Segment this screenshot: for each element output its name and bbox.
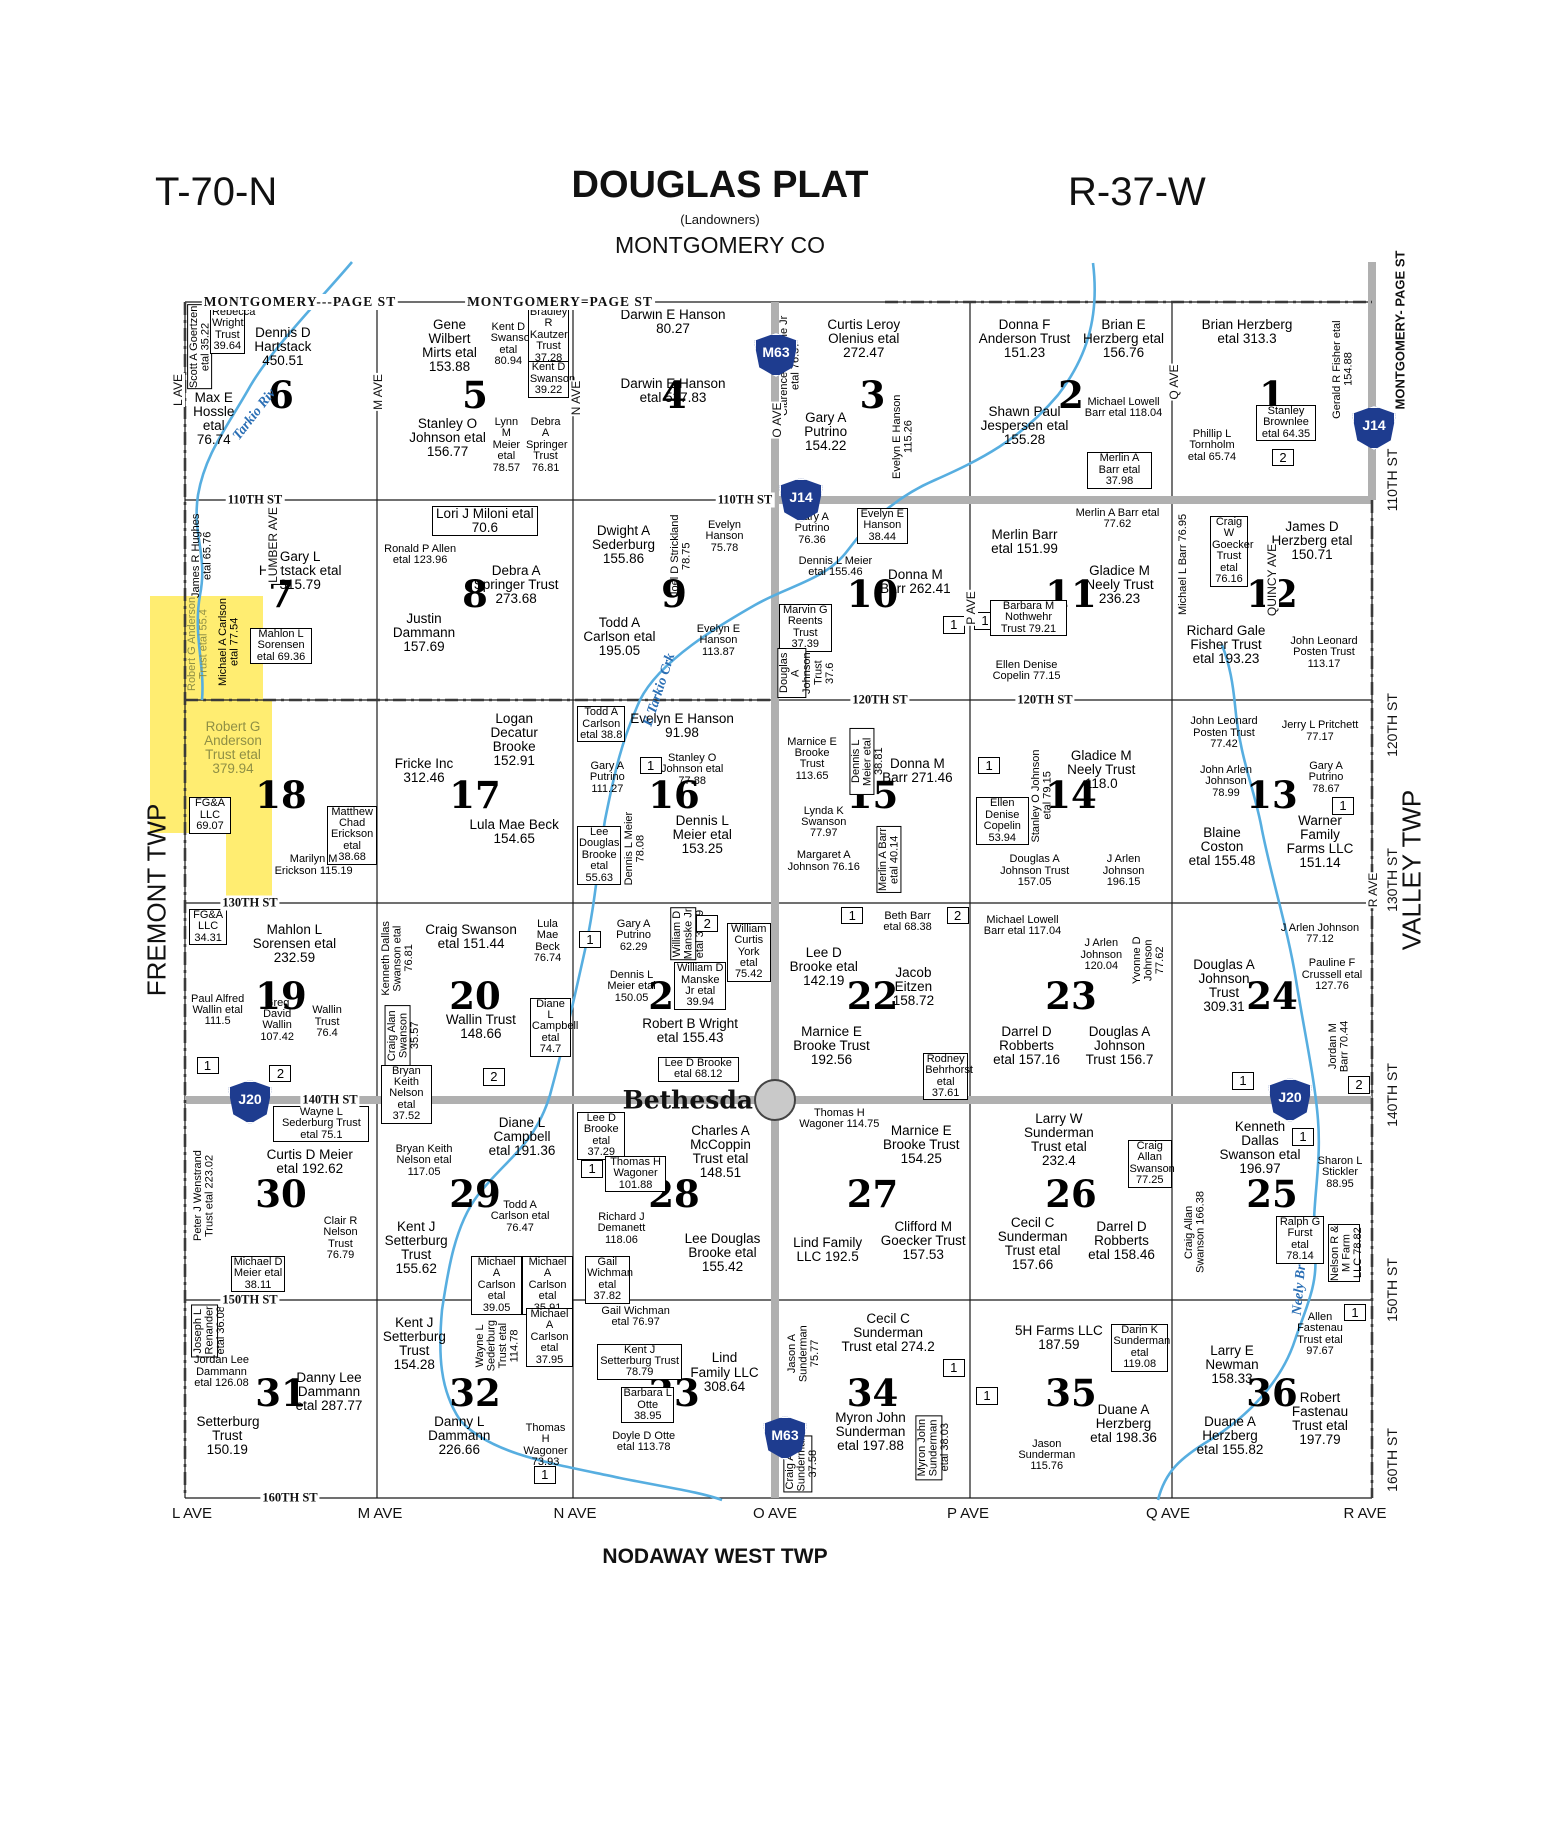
page-subtitle: (Landowners): [680, 212, 760, 227]
map-geometry-layer: [0, 0, 1546, 1824]
highlighted-parcel-shape: [150, 596, 263, 700]
range-label: R-37-W: [1068, 170, 1206, 215]
stream-path: [440, 263, 1094, 1500]
township-label: T-70-N: [155, 170, 277, 215]
page-title: DOUGLAS PLAT: [572, 164, 869, 207]
county-label: MONTGOMERY CO: [615, 232, 825, 259]
highlighted-parcel-shape: [150, 700, 272, 902]
plat-map-page: T-70-N DOUGLAS PLAT (Landowners) MONTGOM…: [0, 0, 1546, 1824]
stream-path: [1158, 645, 1319, 1500]
